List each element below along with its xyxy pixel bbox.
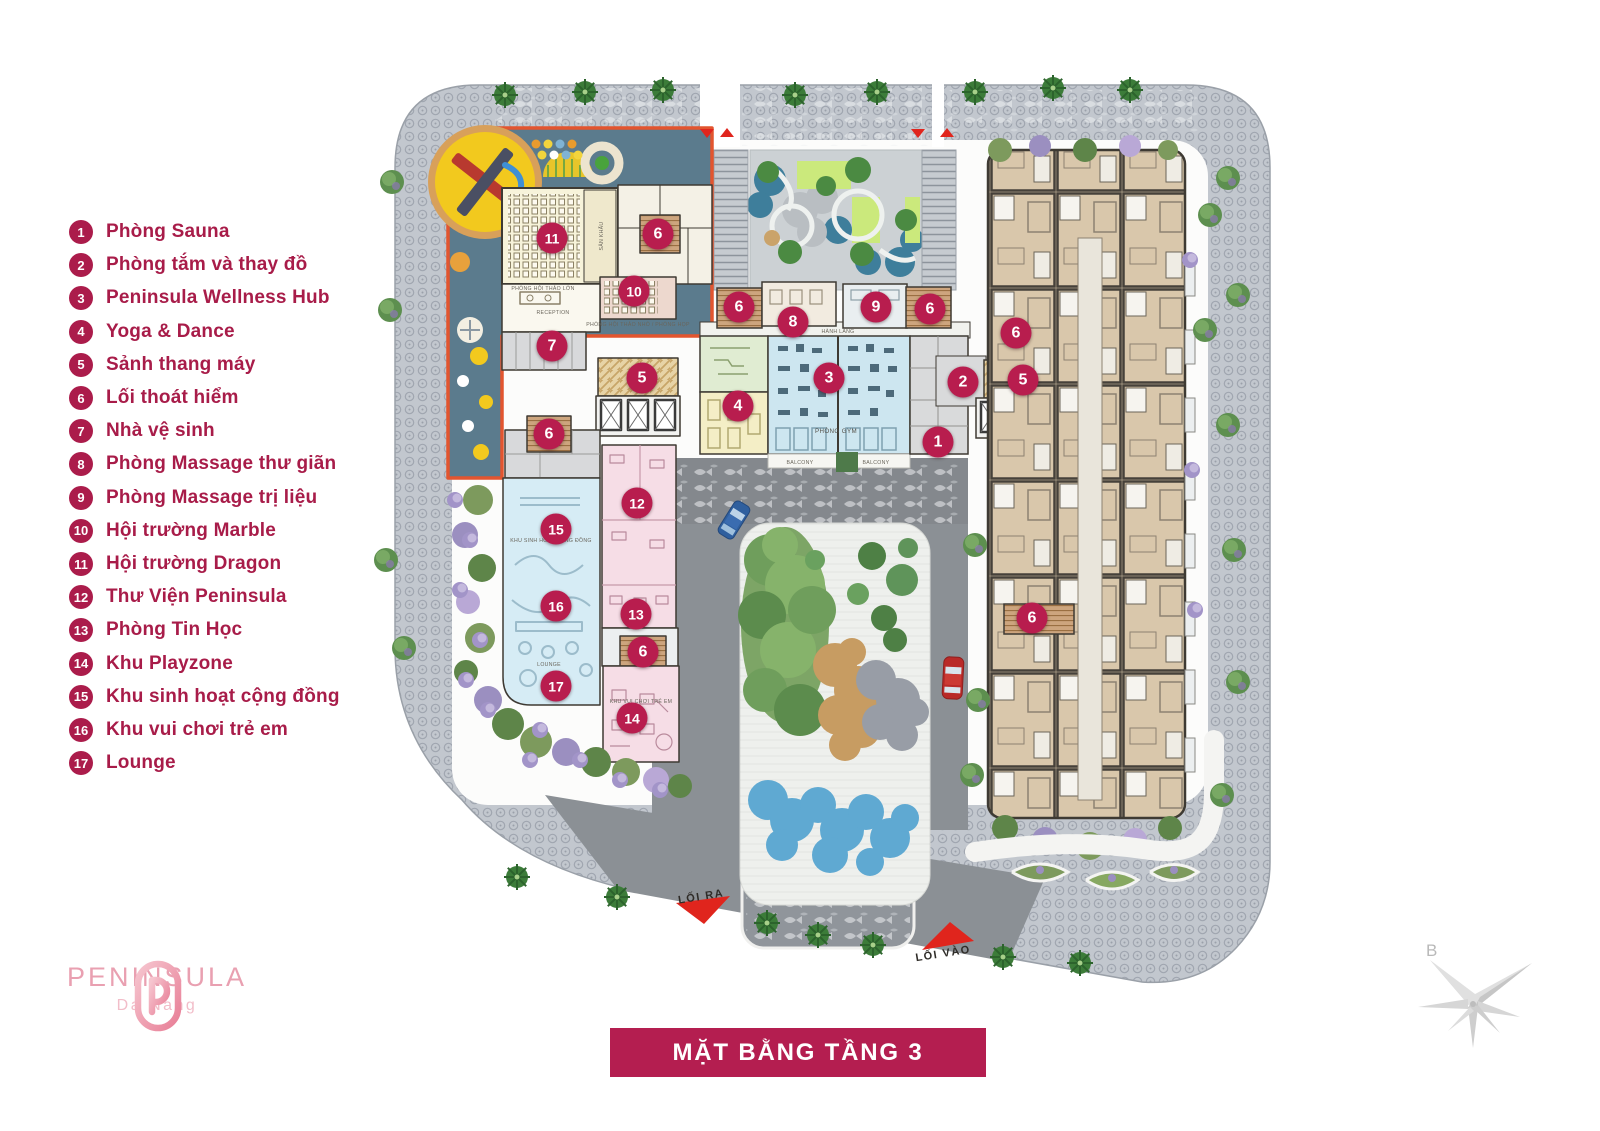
title-banner-text: MẶT BẰNG TẦNG 3 [673, 1039, 924, 1067]
plan-badge-4: 4 [723, 391, 754, 422]
shrub-icon [480, 702, 496, 718]
palm-tree-icon [962, 79, 988, 105]
right-wing [988, 135, 1195, 860]
compass-rose-icon [1380, 915, 1570, 1065]
legend-label-8: Phòng Massage thư giãn [106, 453, 336, 475]
legend-label-2: Phòng tắm và thay đồ [106, 254, 307, 276]
shrub-icon [1184, 462, 1200, 478]
palm-tree-icon [604, 884, 630, 910]
brand-logo: PENINSULA Da Nang [62, 958, 252, 1015]
legend-badge-7: 7 [69, 419, 93, 443]
tree-icon [1222, 538, 1246, 562]
tree-icon [1216, 166, 1240, 190]
plan-badge-7: 7 [537, 331, 568, 362]
tree-icon [378, 298, 402, 322]
legend-badge-4: 4 [69, 320, 93, 344]
legend-badge-9: 9 [69, 486, 93, 510]
shrub-icon [458, 672, 474, 688]
label-balcony-2: BALCONY [863, 460, 890, 466]
legend-badge-13: 13 [69, 618, 93, 642]
plan-badge-8: 8 [778, 307, 809, 338]
tree-icon [1193, 318, 1217, 342]
plan-badge-12: 12 [622, 488, 653, 519]
legend-label-9: Phòng Massage trị liệu [106, 487, 317, 509]
legend-badge-15: 15 [69, 685, 93, 709]
palm-tree-icon [504, 864, 530, 890]
label-balcony-1: BALCONY [787, 460, 814, 466]
title-banner: MẶT BẰNG TẦNG 3 [610, 1028, 986, 1077]
plan-badge-15: 15 [541, 514, 572, 545]
legend-item-11: 11Hội trường Dragon [69, 552, 281, 576]
legend-item-17: 17Lounge [69, 751, 176, 775]
logo-monogram [62, 958, 252, 1034]
legend-item-3: 3Peninsula Wellness Hub [69, 286, 330, 310]
central-plaza [738, 523, 930, 905]
tree-icon [374, 548, 398, 572]
legend-label-5: Sảnh thang máy [106, 354, 256, 376]
legend-badge-3: 3 [69, 286, 93, 310]
plan-badge-6: 6 [1017, 603, 1048, 634]
legend-badge-2: 2 [69, 253, 93, 277]
tree-icon [1226, 283, 1250, 307]
palm-tree-icon [572, 79, 598, 105]
palm-tree-icon [864, 79, 890, 105]
shrub-icon [522, 752, 538, 768]
plan-badge-11: 11 [537, 223, 568, 254]
zen-garden [747, 150, 924, 290]
legend-badge-16: 16 [69, 718, 93, 742]
legend-item-2: 2Phòng tắm và thay đồ [69, 253, 307, 277]
legend-badge-12: 12 [69, 585, 93, 609]
label-hall-big: PHÒNG HỘI THẢO LỚN [511, 285, 574, 292]
legend-label-15: Khu sinh hoạt cộng đồng [106, 686, 340, 708]
legend-label-3: Peninsula Wellness Hub [106, 287, 330, 309]
legend-item-15: 15Khu sinh hoạt cộng đồng [69, 685, 340, 709]
plan-badge-5: 5 [1008, 365, 1039, 396]
legend-label-17: Lounge [106, 752, 176, 774]
shrub-icon [1182, 252, 1198, 268]
plan-badge-2: 2 [948, 367, 979, 398]
plan-badge-6: 6 [724, 292, 755, 323]
plan-badge-13: 13 [621, 599, 652, 630]
legend-label-10: Hội trường Marble [106, 520, 276, 542]
shrub-icon [532, 722, 548, 738]
legend-item-13: 13Phòng Tin Học [69, 618, 242, 642]
shrub-icon [472, 632, 488, 648]
legend-item-6: 6Lối thoát hiểm [69, 386, 239, 410]
legend-item-16: 16Khu vui chơi trẻ em [69, 718, 288, 742]
plan-badge-6: 6 [1001, 318, 1032, 349]
tree-icon [966, 688, 990, 712]
legend-label-13: Phòng Tin Học [106, 619, 242, 641]
palm-tree-icon [1067, 950, 1093, 976]
legend-item-8: 8Phòng Massage thư giãn [69, 452, 336, 476]
plan-badge-6: 6 [628, 637, 659, 668]
palm-tree-icon [1040, 75, 1066, 101]
label-reception: RECEPTION [537, 310, 570, 316]
palm-tree-icon [492, 82, 518, 108]
legend-label-4: Yoga & Dance [106, 321, 235, 343]
shrub-icon [612, 772, 628, 788]
palm-tree-icon [805, 922, 831, 948]
shrub-icon [572, 752, 588, 768]
legend-badge-6: 6 [69, 386, 93, 410]
palm-tree-icon [754, 910, 780, 936]
legend-label-12: Thư Viện Peninsula [106, 586, 287, 608]
legend-item-12: 12Thư Viện Peninsula [69, 585, 287, 609]
shrub-icon [447, 492, 463, 508]
tree-icon [960, 763, 984, 787]
plan-badge-6: 6 [643, 219, 674, 250]
plan-badge-9: 9 [861, 292, 892, 323]
plan-badge-1: 1 [923, 427, 954, 458]
label-kids: KHU VUI CHƠI TRẺ EM [610, 698, 673, 705]
tree-icon [380, 170, 404, 194]
plan-badge-16: 16 [541, 591, 572, 622]
shrub-icon [1187, 602, 1203, 618]
shrub-icon [462, 532, 478, 548]
car-red [942, 657, 964, 700]
legend-label-7: Nhà vệ sinh [106, 420, 215, 442]
legend-label-14: Khu Playzone [106, 653, 233, 675]
palm-tree-icon [860, 932, 886, 958]
palm-tree-icon [1117, 77, 1143, 103]
legend-badge-17: 17 [69, 751, 93, 775]
palm-tree-icon [650, 77, 676, 103]
plan-badge-17: 17 [541, 671, 572, 702]
tree-icon [1226, 670, 1250, 694]
tree-icon [1210, 783, 1234, 807]
legend-badge-10: 10 [69, 519, 93, 543]
legend-item-9: 9Phòng Massage trị liệu [69, 486, 317, 510]
tree-icon [1198, 203, 1222, 227]
legend-item-5: 5Sảnh thang máy [69, 353, 256, 377]
tree-icon [963, 533, 987, 557]
legend-label-6: Lối thoát hiểm [106, 387, 239, 409]
legend-item-10: 10Hội trường Marble [69, 519, 276, 543]
palm-tree-icon [990, 944, 1016, 970]
tree-icon [1216, 413, 1240, 437]
legend-badge-5: 5 [69, 353, 93, 377]
compass: B [1380, 915, 1570, 1065]
plan-badge-14: 14 [617, 703, 648, 734]
tree-icon [392, 636, 416, 660]
label-stage: SÂN KHẤU [598, 222, 605, 251]
label-gym: PHÒNG GYM [815, 428, 857, 435]
label-lounge: LOUNGE [537, 662, 561, 668]
legend-label-11: Hội trường Dragon [106, 553, 281, 575]
legend-badge-11: 11 [69, 552, 93, 576]
legend-item-7: 7Nhà vệ sinh [69, 419, 215, 443]
plan-badge-5: 5 [627, 363, 658, 394]
legend-label-16: Khu vui chơi trẻ em [106, 719, 288, 741]
legend-badge-14: 14 [69, 652, 93, 676]
legend-item-4: 4Yoga & Dance [69, 320, 235, 344]
plan-badge-3: 3 [814, 363, 845, 394]
legend-item-14: 14Khu Playzone [69, 652, 233, 676]
plan-badge-6: 6 [534, 419, 565, 450]
legend-item-1: 1Phòng Sauna [69, 220, 230, 244]
label-corridor: HÀNH LANG [822, 328, 855, 335]
page: { "accent": { "crimson": "#b41e50", "leg… [0, 0, 1600, 1131]
plan-badge-10: 10 [619, 276, 650, 307]
palm-tree-icon [782, 82, 808, 108]
plan-badge-6: 6 [915, 294, 946, 325]
legend-badge-8: 8 [69, 452, 93, 476]
shrub-icon [652, 782, 668, 798]
legend-badge-1: 1 [69, 220, 93, 244]
label-hall-small: PHÒNG HỘI THẢO NHỎ / PHÒNG HỌP [586, 321, 690, 328]
legend-label-1: Phòng Sauna [106, 221, 230, 243]
shrub-icon [452, 582, 468, 598]
